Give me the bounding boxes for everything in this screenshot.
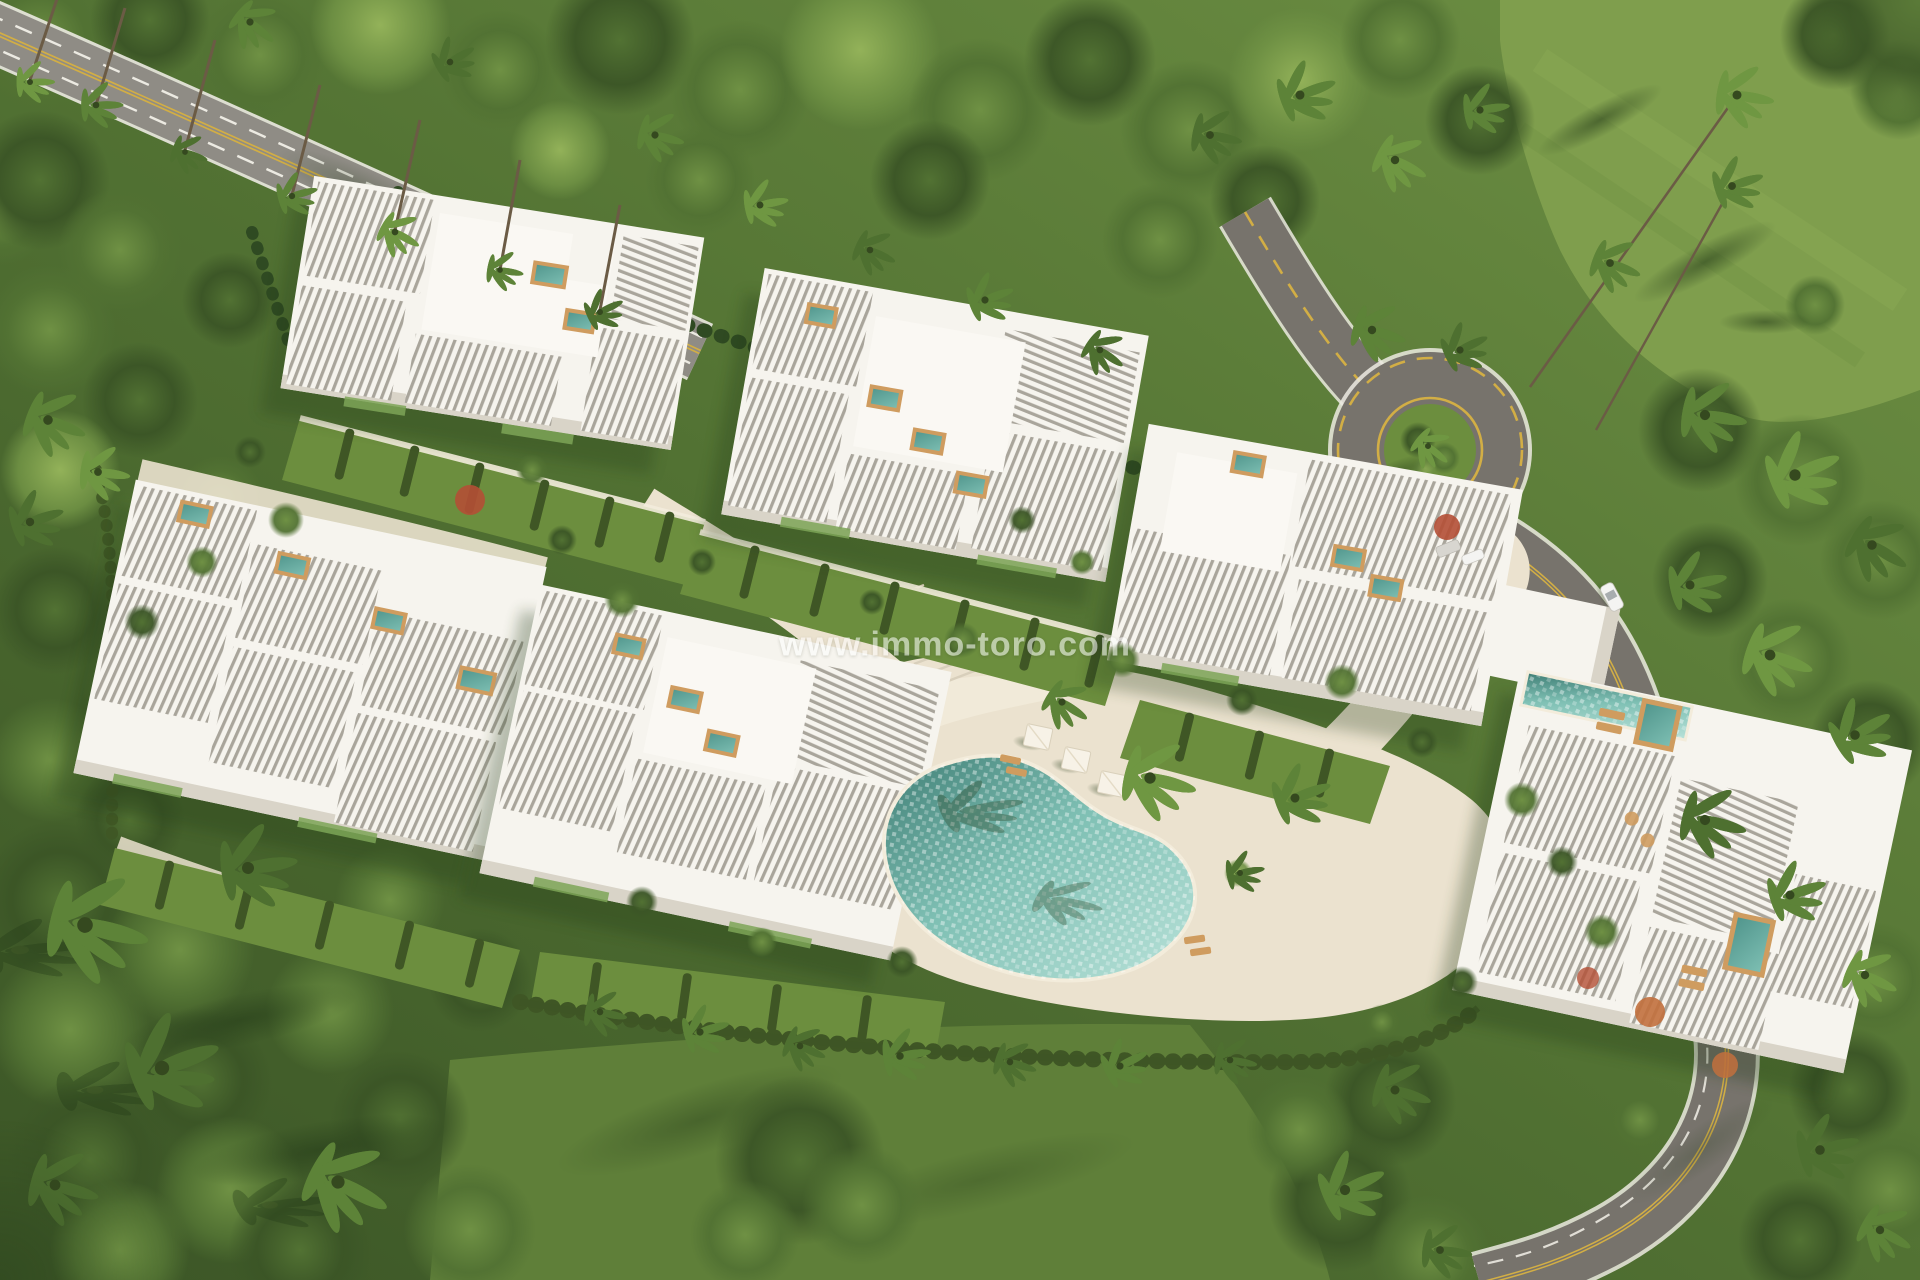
watermark: www.immo-toro.com	[779, 626, 1131, 665]
aerial-render-screenshot: www.immo-toro.com	[0, 0, 1920, 1280]
